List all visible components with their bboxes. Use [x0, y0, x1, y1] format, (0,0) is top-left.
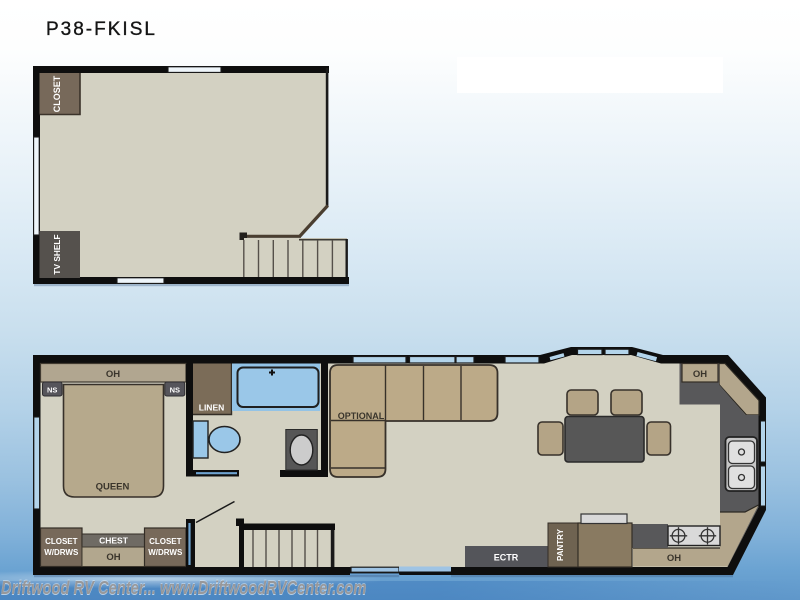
svg-text:ECTR: ECTR	[494, 553, 519, 563]
svg-text:TV SHELF: TV SHELF	[52, 234, 62, 274]
svg-text:OH: OH	[693, 369, 707, 380]
svg-text:P38-FKISL: P38-FKISL	[46, 19, 157, 40]
svg-text:NS: NS	[170, 386, 180, 395]
svg-text:CLOSET: CLOSET	[52, 75, 62, 112]
svg-text:W/DRWS: W/DRWS	[148, 548, 183, 557]
svg-text:CLOSET: CLOSET	[149, 537, 182, 546]
svg-text:QUEEN: QUEEN	[96, 482, 130, 493]
svg-text:PANTRY: PANTRY	[556, 528, 565, 561]
svg-text:OH: OH	[106, 552, 120, 563]
svg-text:OH: OH	[667, 553, 681, 564]
svg-text:LINEN: LINEN	[199, 403, 225, 413]
svg-text:OH: OH	[106, 369, 120, 380]
svg-text:W/DRWS: W/DRWS	[44, 548, 79, 557]
svg-text:CLOSET: CLOSET	[45, 537, 78, 546]
svg-text:CHEST: CHEST	[99, 536, 129, 546]
svg-text:NS: NS	[47, 386, 57, 395]
svg-text:OPTIONAL: OPTIONAL	[338, 411, 385, 421]
